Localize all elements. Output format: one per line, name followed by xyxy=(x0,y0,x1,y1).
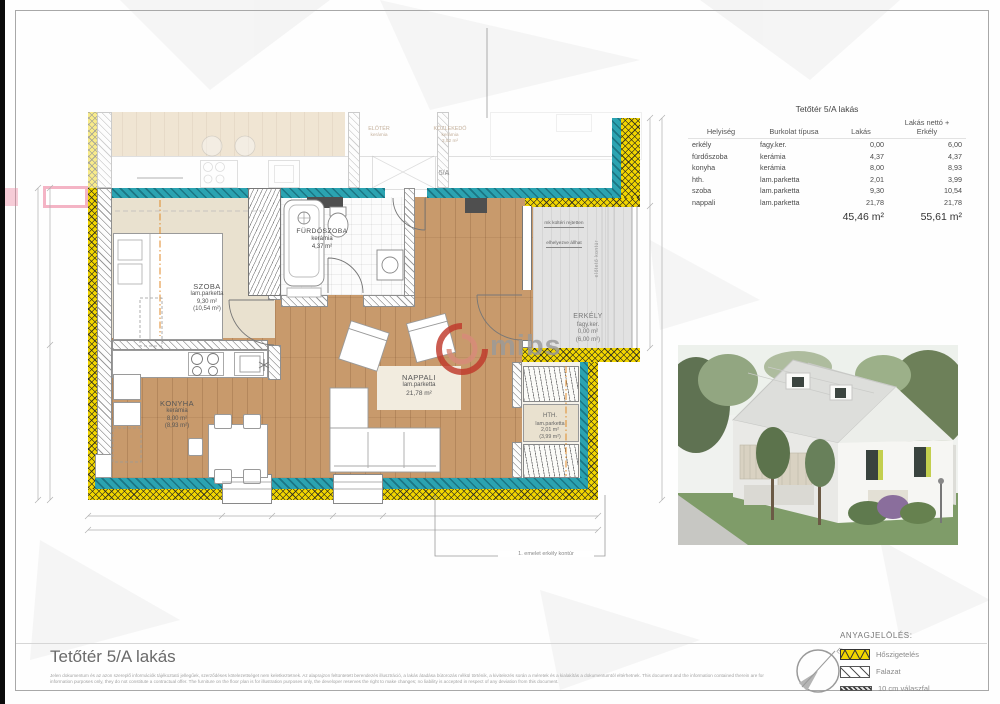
pink-contour-box xyxy=(43,186,88,208)
watermark-logo-icon xyxy=(432,322,492,376)
wall-right-upper-teal xyxy=(612,118,621,198)
radiator-box xyxy=(95,454,112,478)
disclaimer-hu: Jelen dokumentum és az azon szereplő inf… xyxy=(50,673,641,678)
shaft xyxy=(248,188,281,296)
wall-szoba-nappali-lower xyxy=(268,345,281,380)
col-header-flooring: Burkolat típusa xyxy=(754,128,834,139)
canopy-contour-label: előtető kontúr xyxy=(594,240,600,277)
disclaimer: Jelen dokumentum és az azon szereplő inf… xyxy=(50,673,776,684)
hth-shelf-bottom xyxy=(523,444,579,478)
room-label-konyha: KONYHA kerámia 8,00 m² (8,93 m²) xyxy=(140,399,214,431)
kitchen-cabinet xyxy=(113,402,141,426)
dining-chair xyxy=(243,469,261,484)
bath-mirror-cabinet xyxy=(307,197,343,208)
legend-item-insulation: Hőszigetelés xyxy=(840,646,930,663)
watermark: mibs xyxy=(432,322,582,376)
col-header-net: Lakás nettó + Erkély xyxy=(888,119,966,138)
table-row: szoba lam.parketta 9,30 10,54 xyxy=(688,185,966,197)
wall-balcony-top-insulation xyxy=(525,198,640,207)
balcony-note: mk kültéri rejtetten elhelyezve állhat xyxy=(531,210,597,250)
wall-bottom-insulation-1 xyxy=(88,489,222,500)
col-header-room: Helyiség xyxy=(688,128,754,139)
room-label-nappali: NAPPALI lam.parketta 21,78 m² xyxy=(377,373,461,398)
wall-szoba-konyha xyxy=(112,340,268,350)
wall-bottom-teal-3 xyxy=(383,478,588,489)
legend-item-masonry: Falazat xyxy=(840,663,930,680)
wall-right-lower-insulation xyxy=(588,348,598,489)
table-row: fürdőszoba kerámia 4,37 4,37 xyxy=(688,151,966,163)
wall-bath-right xyxy=(404,188,415,307)
wall-bath-bottom-right xyxy=(363,295,415,307)
dining-chair xyxy=(214,414,232,429)
legend: ANYAGJELÖLÉS: Hőszigetelés Falazat 10 cm… xyxy=(840,631,930,697)
masonry-swatch xyxy=(840,666,870,678)
fridge xyxy=(113,374,141,400)
sheet-title: Tetőtér 5/A lakás xyxy=(50,647,176,667)
room-label-hth: HTH. lam.parketta 2,01 m² (3,99 m²) xyxy=(518,413,582,440)
room-label-szoba: SZOBA lam.parketta 9,30 m² (10,54 m²) xyxy=(166,282,248,314)
unit-door-label: 5/A xyxy=(430,170,458,179)
kitchen-sink xyxy=(234,352,264,376)
wall-bottom-insulation-2 xyxy=(272,489,333,500)
entry-wardrobe xyxy=(465,198,487,213)
stove xyxy=(188,352,224,376)
floor-plan-sheet: ELŐTÉR kerámia KÖZLEKEDŐ kerámia 3,52 m²… xyxy=(0,0,1000,704)
area-table-totals: 45,46 m² 55,61 m² xyxy=(688,208,966,226)
dining-chair xyxy=(214,469,232,484)
area-table-title: Tetőtér 5/A lakás xyxy=(688,104,966,114)
balcony-contour-label: 1. emelet erkély kontúr xyxy=(498,551,594,557)
total-net: 55,61 m² xyxy=(888,208,966,226)
table-row: erkély fagy.ker. 0,00 6,00 xyxy=(688,139,966,151)
insulation-swatch xyxy=(840,649,870,660)
dining-chair xyxy=(243,414,261,429)
total-apartment: 45,46 m² xyxy=(834,208,888,226)
col-header-apartment: Lakás xyxy=(834,128,888,139)
scan-edge xyxy=(0,0,5,704)
partition-swatch xyxy=(840,686,872,691)
wall-bath-bottom-left xyxy=(281,295,328,307)
table-row: nappali lam.parketta 21,78 21,78 xyxy=(688,197,966,209)
area-table: Tetőtér 5/A lakás Helyiség Burkolat típu… xyxy=(688,104,966,226)
legend-item-partition: 10 cm válaszfal xyxy=(840,680,930,697)
pink-contour-strip xyxy=(5,188,18,206)
room-label-furdoszoba: FÜRDŐSZOBA kerámia 4,37 m² xyxy=(280,228,364,251)
table-row: hth. lam.parketta 2,01 3,99 xyxy=(688,174,966,186)
room-label-eloter: ELŐTÉR kerámia xyxy=(352,126,406,139)
wall-bottom-insulation-3 xyxy=(383,489,598,500)
area-table-header: Helyiség Burkolat típusa Lakás Lakás net… xyxy=(688,119,966,139)
wall-bottom-teal-1 xyxy=(95,478,222,489)
wall-right-upper-insulation xyxy=(621,118,640,206)
window xyxy=(333,474,383,504)
wall-top-right xyxy=(427,188,612,198)
building-render xyxy=(678,345,958,545)
wall-hth-left-lower xyxy=(512,442,522,478)
room-label-kozlekedo: KÖZLEKEDŐ kerámia 3,52 m² xyxy=(420,126,480,145)
watermark-text: mibs xyxy=(490,330,562,363)
table-row: konyha kerámia 8,00 8,93 xyxy=(688,162,966,174)
wall-bottom-teal-2 xyxy=(272,478,333,489)
dining-chair xyxy=(188,438,203,456)
legend-title: ANYAGJELÖLÉS: xyxy=(840,631,930,640)
